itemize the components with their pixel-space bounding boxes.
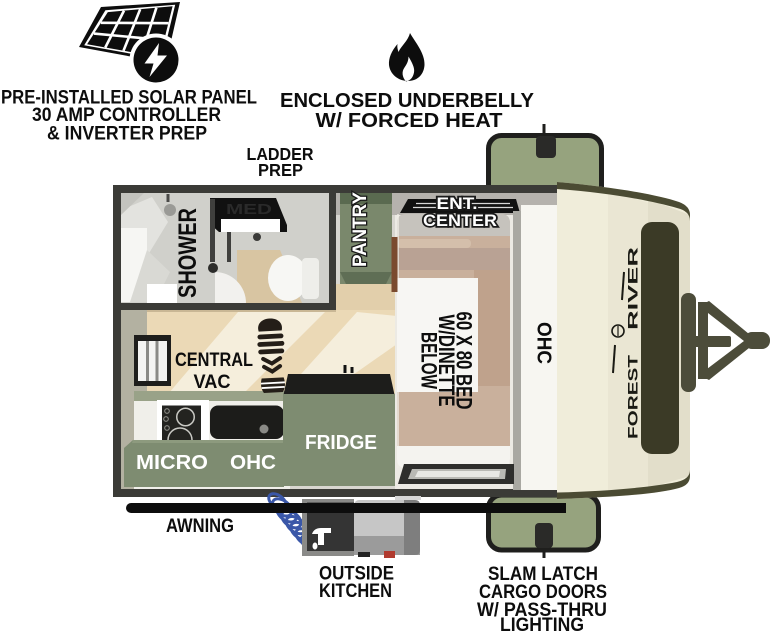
svg-text:MED: MED bbox=[226, 201, 272, 218]
svg-text:FRIDGE: FRIDGE bbox=[305, 432, 377, 454]
svg-text:OHC: OHC bbox=[230, 452, 276, 474]
svg-text:W/ FORCED HEAT: W/ FORCED HEAT bbox=[316, 110, 503, 132]
svg-text:ENCLOSED UNDERBELLY: ENCLOSED UNDERBELLY bbox=[280, 90, 535, 112]
svg-text:BELOW: BELOW bbox=[417, 332, 442, 389]
svg-text:PANTRY: PANTRY bbox=[350, 192, 371, 267]
svg-text:OHC: OHC bbox=[533, 322, 555, 364]
svg-text:RIVER: RIVER bbox=[625, 247, 641, 330]
svg-text:VAC: VAC bbox=[194, 372, 231, 393]
svg-text:& INVERTER PREP: & INVERTER PREP bbox=[47, 124, 207, 145]
svg-text:SHOWER: SHOWER bbox=[174, 208, 202, 298]
svg-text:AWNING: AWNING bbox=[166, 516, 234, 537]
svg-text:FOREST: FOREST bbox=[625, 354, 641, 439]
svg-text:KITCHEN: KITCHEN bbox=[319, 581, 392, 602]
svg-text:CENTRAL: CENTRAL bbox=[175, 350, 253, 371]
svg-text:CENTER: CENTER bbox=[423, 211, 497, 230]
svg-text:PREP: PREP bbox=[258, 160, 303, 180]
svg-text:MICRO: MICRO bbox=[136, 452, 208, 474]
svg-text:LIGHTING: LIGHTING bbox=[500, 615, 584, 632]
